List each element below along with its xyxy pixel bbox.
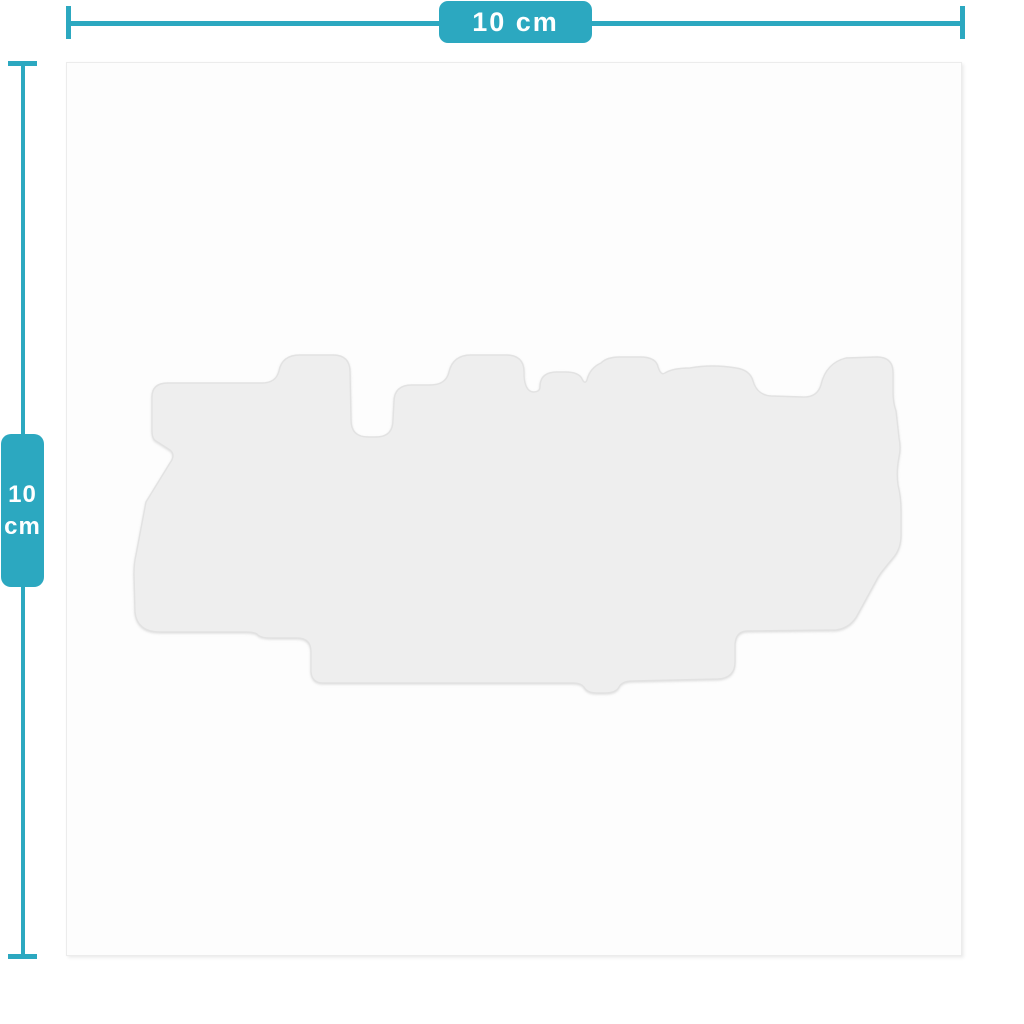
width-badge-label: 10 cm — [472, 7, 559, 38]
width-ruler-cap-right — [960, 6, 965, 39]
product-card — [66, 62, 962, 956]
height-badge: 10 cm — [1, 434, 44, 587]
height-badge-unit: cm — [4, 515, 41, 539]
product-dimension-diagram: 10 cm 10 cm — [0, 0, 1024, 1024]
width-ruler-cap-left — [66, 6, 71, 39]
height-ruler-cap-bottom — [8, 954, 37, 959]
height-ruler-cap-top — [8, 61, 37, 66]
height-badge-value: 10 — [8, 483, 37, 507]
width-badge: 10 cm — [439, 1, 592, 43]
